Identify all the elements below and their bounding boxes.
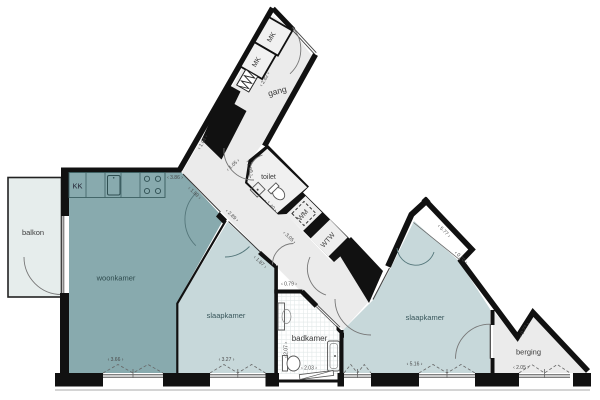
svg-text:‹ 2.05 ›: ‹ 2.05 › [513, 365, 529, 371]
svg-text:‹ 5.16 ›: ‹ 5.16 › [407, 362, 423, 368]
svg-text:badkamer: badkamer [292, 334, 328, 343]
svg-text:berging: berging [516, 348, 541, 357]
svg-text:‹ 2.03 ›: ‹ 2.03 › [301, 366, 317, 372]
svg-text:balkon: balkon [22, 228, 44, 237]
svg-text:‹ 0.79 ›: ‹ 0.79 › [281, 282, 297, 288]
svg-text:‹ 3.27 ›: ‹ 3.27 › [219, 357, 235, 363]
svg-text:woonkamer: woonkamer [96, 274, 136, 283]
svg-text:KK: KK [72, 182, 82, 191]
svg-text:slaapkamer: slaapkamer [207, 311, 246, 320]
svg-text:‹ 3.86 ›: ‹ 3.86 › [167, 175, 183, 181]
svg-text:‹ 3.66 ›: ‹ 3.66 › [108, 357, 124, 363]
svg-text:slaapkamer: slaapkamer [406, 313, 445, 322]
svg-text:toilet: toilet [261, 174, 276, 181]
svg-text:‹ 2.07 ›: ‹ 2.07 › [284, 342, 290, 358]
